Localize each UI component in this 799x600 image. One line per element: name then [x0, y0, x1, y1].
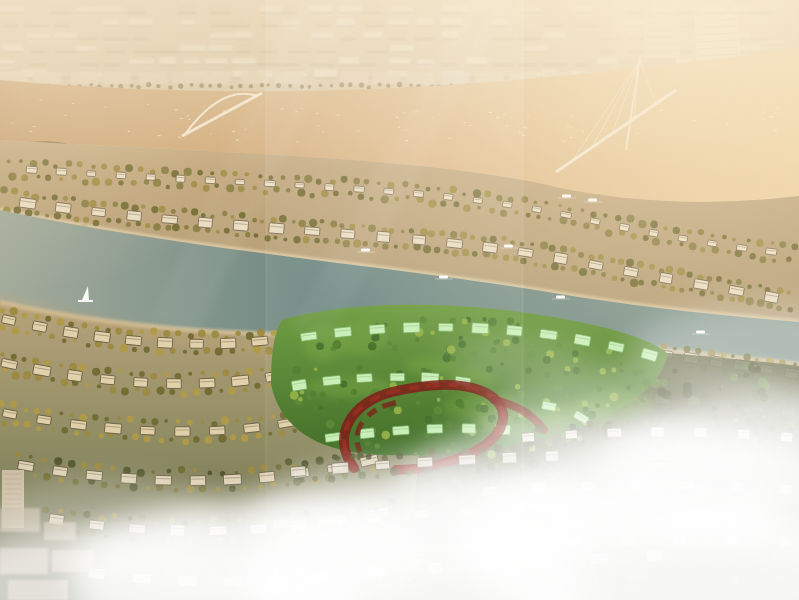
render-canvas: [0, 0, 799, 600]
aerial-masterplan-render: [0, 0, 799, 600]
light-overlay-band: [266, 0, 523, 600]
